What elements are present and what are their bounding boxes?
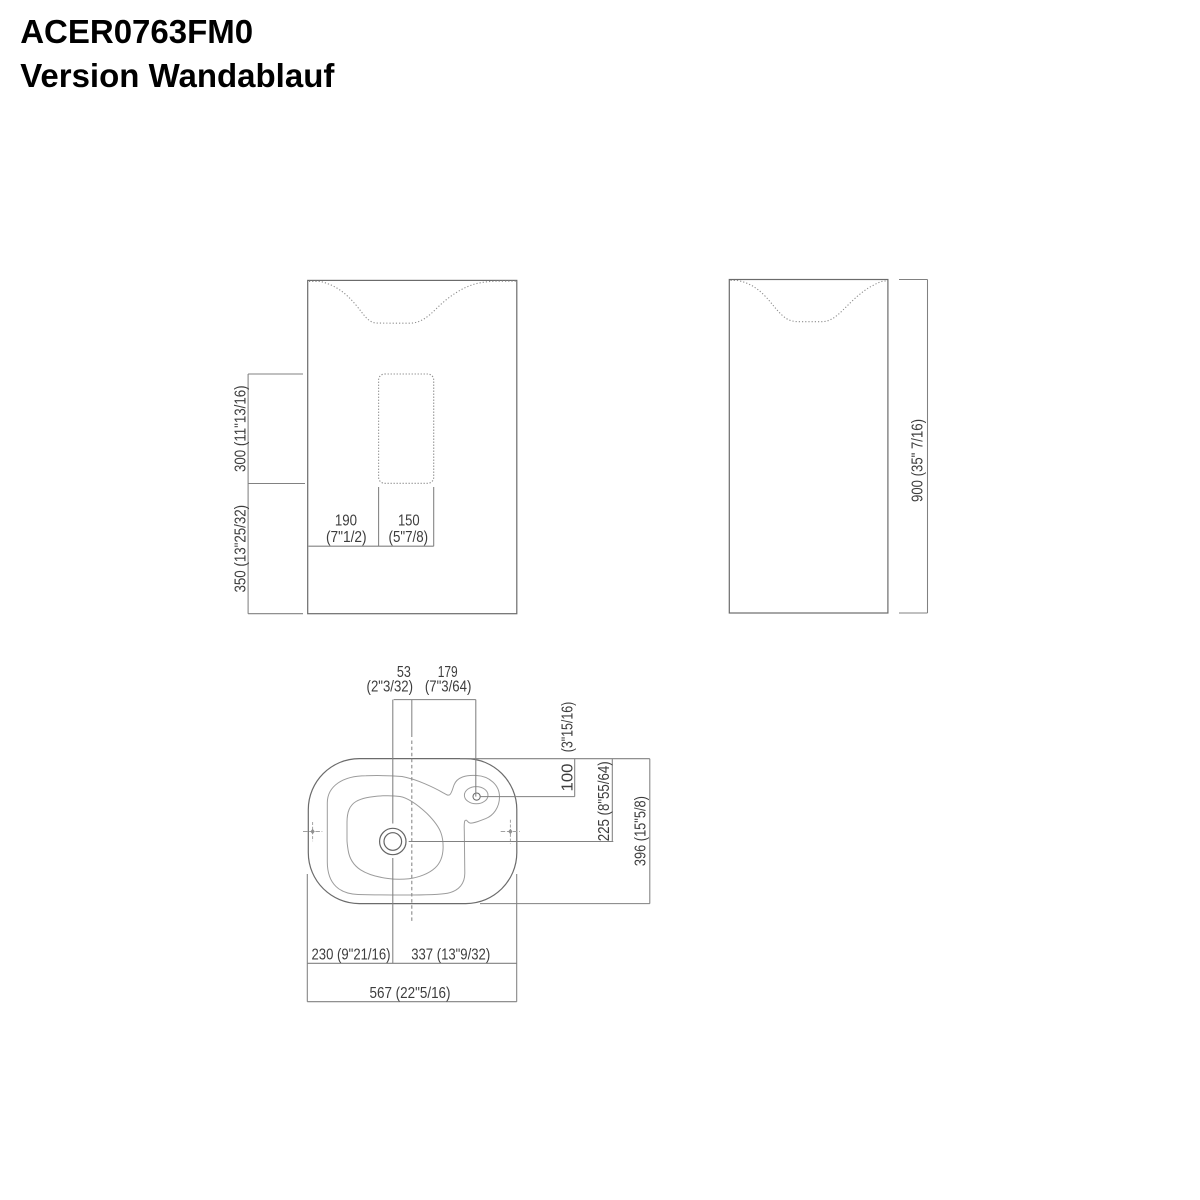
svg-text:337 (13"9/32): 337 (13"9/32): [411, 947, 490, 964]
svg-text:(3"15/16): (3"15/16): [560, 702, 577, 752]
svg-text:230 (9"21/16): 230 (9"21/16): [312, 947, 391, 964]
svg-text:300 (11"13/16): 300 (11"13/16): [233, 385, 250, 472]
svg-text:100: 100: [560, 763, 577, 791]
svg-text:900 (35" 7/16): 900 (35" 7/16): [910, 419, 927, 502]
svg-text:567 (22"5/16): 567 (22"5/16): [370, 985, 451, 1002]
svg-text:(5"7/8): (5"7/8): [389, 529, 429, 546]
svg-text:190: 190: [335, 513, 358, 530]
svg-text:(2"3/32): (2"3/32): [367, 679, 414, 696]
svg-text:(7"1/2): (7"1/2): [326, 529, 367, 546]
svg-text:(7"3/64): (7"3/64): [425, 679, 472, 696]
svg-text:150: 150: [398, 513, 420, 530]
svg-text:350 (13"25/32): 350 (13"25/32): [233, 505, 250, 593]
svg-text:396 (15"5/8): 396 (15"5/8): [632, 796, 649, 866]
svg-text:225 (8"55/64): 225 (8"55/64): [596, 761, 613, 841]
